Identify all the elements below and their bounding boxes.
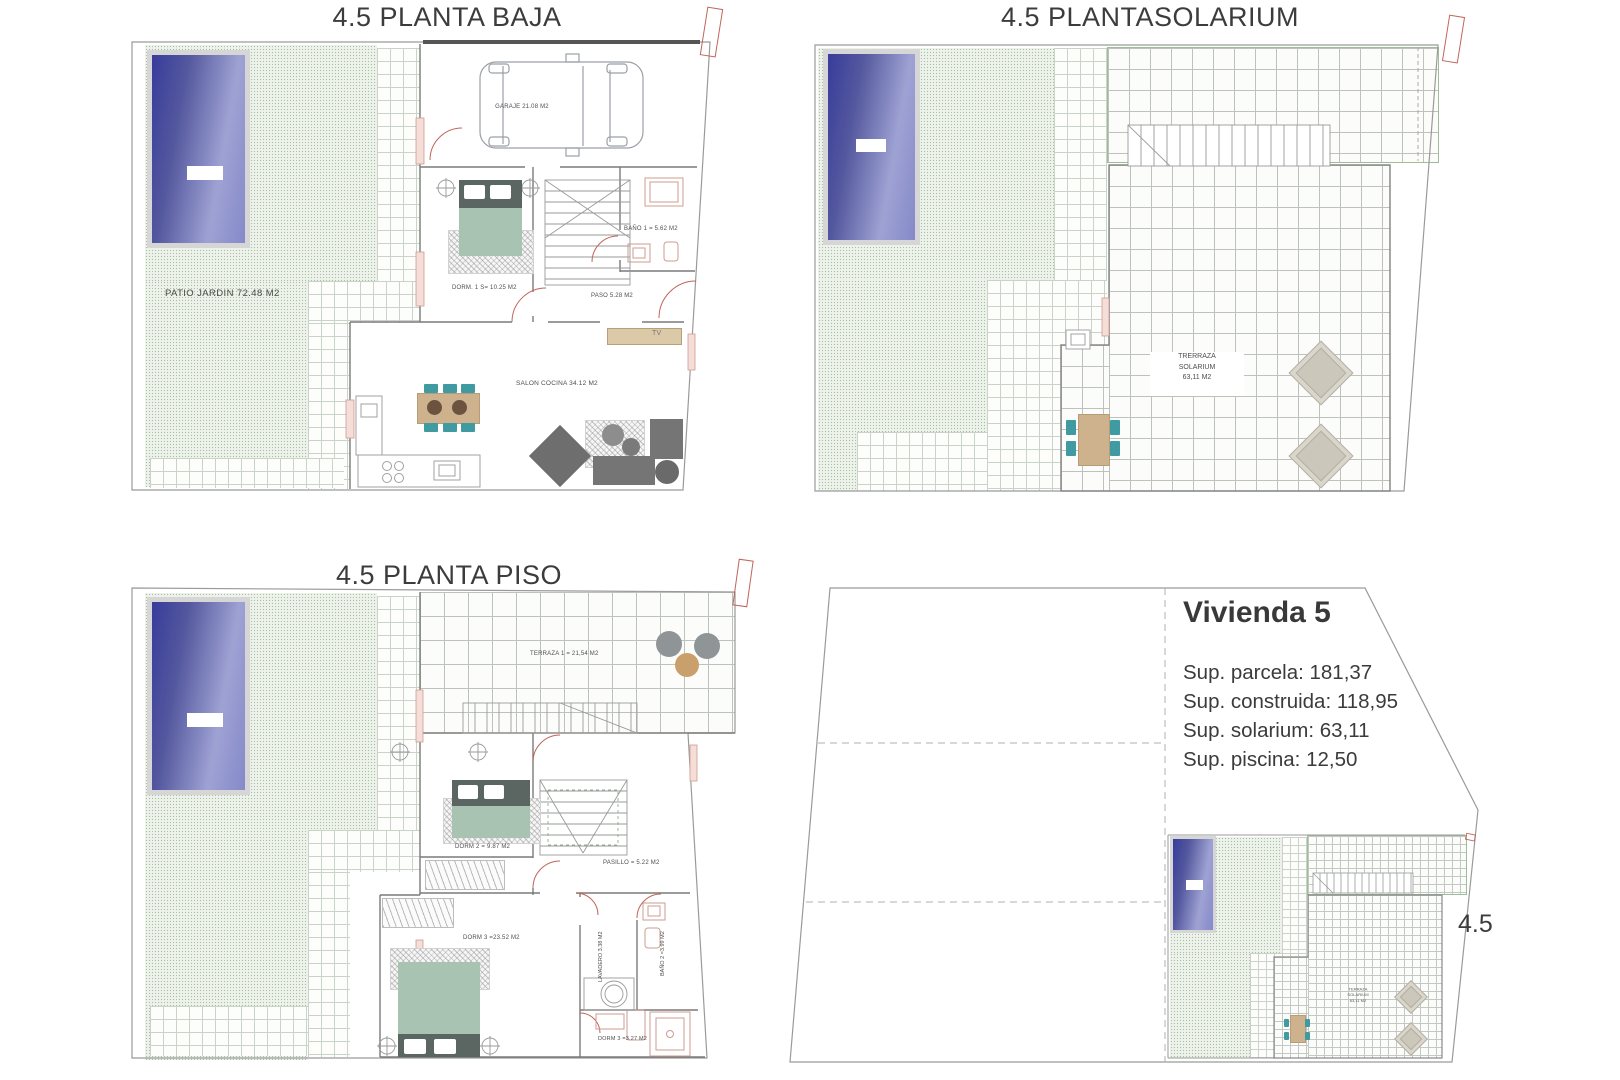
- outdoor-chair-mini: [1284, 1032, 1289, 1040]
- terrace-chair: [694, 633, 720, 659]
- plan3-fixtures: [596, 903, 690, 1056]
- side-table: [622, 438, 640, 456]
- parcel-division-lines: [806, 588, 1165, 1062]
- terraza1-label: TERRAZA 1 = 21,54 M2: [530, 651, 599, 657]
- pillow: [434, 1039, 456, 1054]
- chimney: [700, 7, 722, 57]
- outdoor-chair: [1066, 441, 1076, 456]
- pillow: [458, 785, 478, 799]
- vivienda-title: Vivienda 5: [1183, 596, 1331, 630]
- lavadero-label: LAVADERO 3.38 M2: [598, 918, 604, 982]
- table-setting: [427, 400, 442, 415]
- dorm3-label: DORM 3 =23.52 M2: [463, 935, 520, 941]
- dining-chair: [424, 423, 438, 432]
- chimney: [1442, 15, 1464, 63]
- dining-chair: [424, 384, 438, 393]
- patio-jardin-label: PATIO JARDIN 72.48 M2: [165, 288, 280, 299]
- plan1-window-marks: [346, 118, 695, 438]
- double-bed: [398, 962, 480, 1036]
- plan1-stairs: [545, 180, 630, 285]
- solarium-sink: [1066, 330, 1090, 349]
- outdoor-chair-mini: [1305, 1019, 1310, 1027]
- bano2-label: BAÑO 2 =3.99 M2: [660, 916, 666, 976]
- window-mark: [1102, 298, 1109, 336]
- sofa: [650, 419, 683, 459]
- outdoor-chair: [1066, 420, 1076, 435]
- outdoor-chair: [1110, 441, 1120, 456]
- plan2-stairs: [1128, 125, 1330, 166]
- miniplan-outline: [1168, 835, 1465, 1058]
- wardrobe: [425, 860, 505, 890]
- dining-chair: [461, 423, 475, 432]
- terrace-chair: [656, 631, 682, 657]
- pillow: [484, 785, 504, 799]
- wardrobe: [382, 898, 454, 928]
- pillow: [490, 185, 511, 199]
- pasillo-label: PASILLO = 5.22 M2: [603, 860, 660, 866]
- paso-label: PASO 5.28 M2: [591, 293, 633, 299]
- pouf: [655, 460, 679, 484]
- double-bed: [459, 208, 522, 256]
- bath1-fixtures: [628, 178, 683, 262]
- outdoor-table: [1078, 414, 1110, 466]
- tv-sideboard: [607, 328, 682, 345]
- double-bed: [452, 806, 530, 838]
- terrace-stairs: [463, 703, 637, 733]
- table-setting: [452, 400, 467, 415]
- linework-layer: [0, 0, 1620, 1080]
- garaje-label: GARAJE 21.08 M2: [482, 104, 562, 110]
- solarium-label: TRERRAZA SOLARIUM 63,11 M2: [1150, 352, 1244, 396]
- plot-number-label: 4.5: [1458, 910, 1493, 939]
- dining-chair: [461, 384, 475, 393]
- plan3-stairs: [540, 780, 627, 855]
- miniplan-stairs: [1313, 873, 1413, 893]
- sofa: [593, 456, 655, 485]
- salon-label: SALON COCINA 34.12 M2: [516, 380, 598, 387]
- sup-parcela: Sup. parcela: 181,37: [1183, 658, 1372, 687]
- sup-piscina: Sup. piscina: 12,50: [1183, 745, 1357, 774]
- terrace-table: [675, 653, 699, 677]
- outdoor-chair: [1110, 420, 1120, 435]
- dorm1-label: DORM. 1 S= 10.25 M2: [452, 285, 517, 291]
- bano3-label: DORM 3 =3.27 M2: [598, 1036, 647, 1042]
- mini-solarium-label: TERRAZA SOLARIUM 63,11 M2: [1340, 987, 1376, 1004]
- side-table: [602, 424, 624, 446]
- dorm2-label: DORM 2 = 9.87 M2: [455, 844, 510, 850]
- pillow: [464, 185, 485, 199]
- bano1-label: BAÑO 1 = 5.62 M2: [624, 226, 678, 232]
- plan-sheet: 4.5 PLANTA BAJA 4.5 PLANTASOLARIUM 4.5 P…: [0, 0, 1620, 1080]
- washer: [584, 978, 634, 1010]
- plan2-boundary: [815, 45, 1438, 491]
- chimney: [733, 559, 753, 607]
- outdoor-table-mini: [1290, 1015, 1306, 1043]
- dining-chair: [443, 384, 457, 393]
- sup-solarium: Sup. solarium: 63,11: [1183, 716, 1370, 745]
- tv-label: TV: [652, 330, 661, 337]
- dining-chair: [443, 423, 457, 432]
- chimney-mini: [1465, 833, 1475, 841]
- pillow: [404, 1039, 426, 1054]
- sup-construida: Sup. construida: 118,95: [1183, 687, 1398, 716]
- outdoor-chair-mini: [1284, 1019, 1289, 1027]
- outdoor-chair-mini: [1305, 1032, 1310, 1040]
